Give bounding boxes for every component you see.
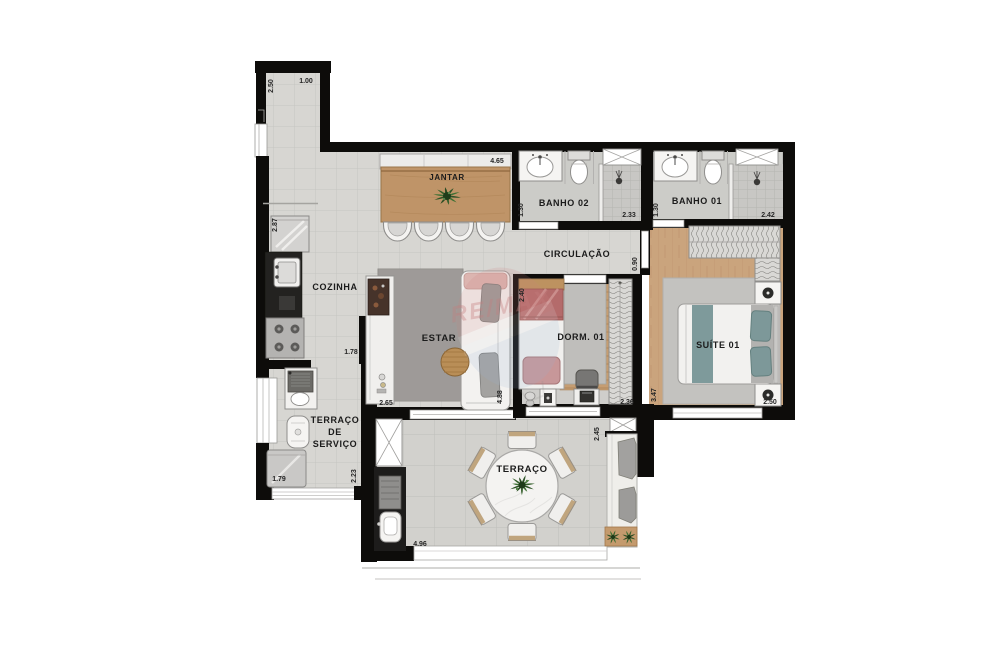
svg-text:COZINHA: COZINHA	[312, 282, 357, 292]
svg-text:1.78: 1.78	[344, 349, 358, 356]
svg-text:JANTAR: JANTAR	[429, 173, 464, 182]
svg-text:1.30: 1.30	[653, 203, 660, 217]
svg-text:4.96: 4.96	[413, 541, 427, 548]
svg-text:ESTAR: ESTAR	[422, 333, 457, 344]
svg-text:2.45: 2.45	[594, 427, 601, 441]
svg-text:TERRAÇO: TERRAÇO	[311, 415, 360, 425]
svg-text:3.47: 3.47	[651, 388, 658, 402]
svg-text:SERVIÇO: SERVIÇO	[313, 439, 358, 449]
svg-text:BANHO 02: BANHO 02	[539, 198, 589, 208]
svg-text:SUÍTE 01: SUÍTE 01	[696, 340, 740, 350]
svg-text:2.33: 2.33	[622, 212, 636, 219]
svg-text:TERRAÇO: TERRAÇO	[496, 464, 547, 475]
svg-text:2.23: 2.23	[351, 469, 358, 483]
svg-text:2.65: 2.65	[379, 400, 393, 407]
svg-text:2.42: 2.42	[761, 212, 775, 219]
svg-text:2.50: 2.50	[763, 399, 777, 406]
svg-text:4.88: 4.88	[497, 390, 504, 404]
svg-text:1.00: 1.00	[299, 78, 313, 85]
svg-text:1.79: 1.79	[272, 476, 286, 483]
svg-text:4.65: 4.65	[490, 158, 504, 165]
svg-text:2.87: 2.87	[272, 218, 279, 232]
svg-text:2.36: 2.36	[620, 399, 634, 406]
svg-text:CIRCULAÇÃO: CIRCULAÇÃO	[544, 249, 611, 259]
svg-text:0.90: 0.90	[632, 257, 639, 271]
svg-text:DORM. 01: DORM. 01	[557, 332, 604, 342]
svg-text:2.40: 2.40	[519, 288, 526, 302]
svg-text:DE: DE	[328, 427, 342, 437]
svg-text:2.50: 2.50	[268, 79, 275, 93]
svg-text:BANHO 01: BANHO 01	[672, 196, 722, 206]
svg-text:1.30: 1.30	[518, 203, 525, 217]
